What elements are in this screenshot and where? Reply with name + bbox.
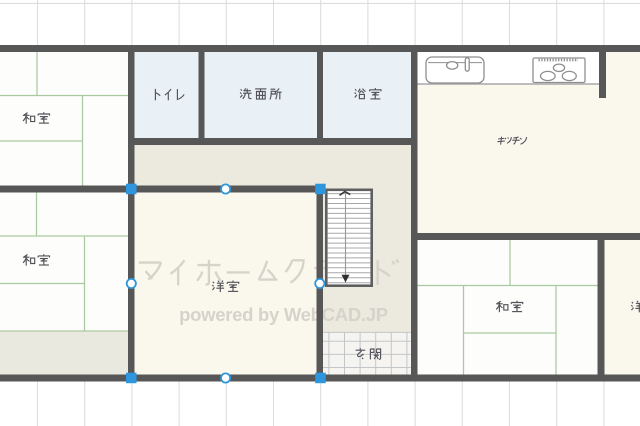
svg-text:powered by WebCAD.JP: powered by WebCAD.JP bbox=[179, 304, 388, 325]
